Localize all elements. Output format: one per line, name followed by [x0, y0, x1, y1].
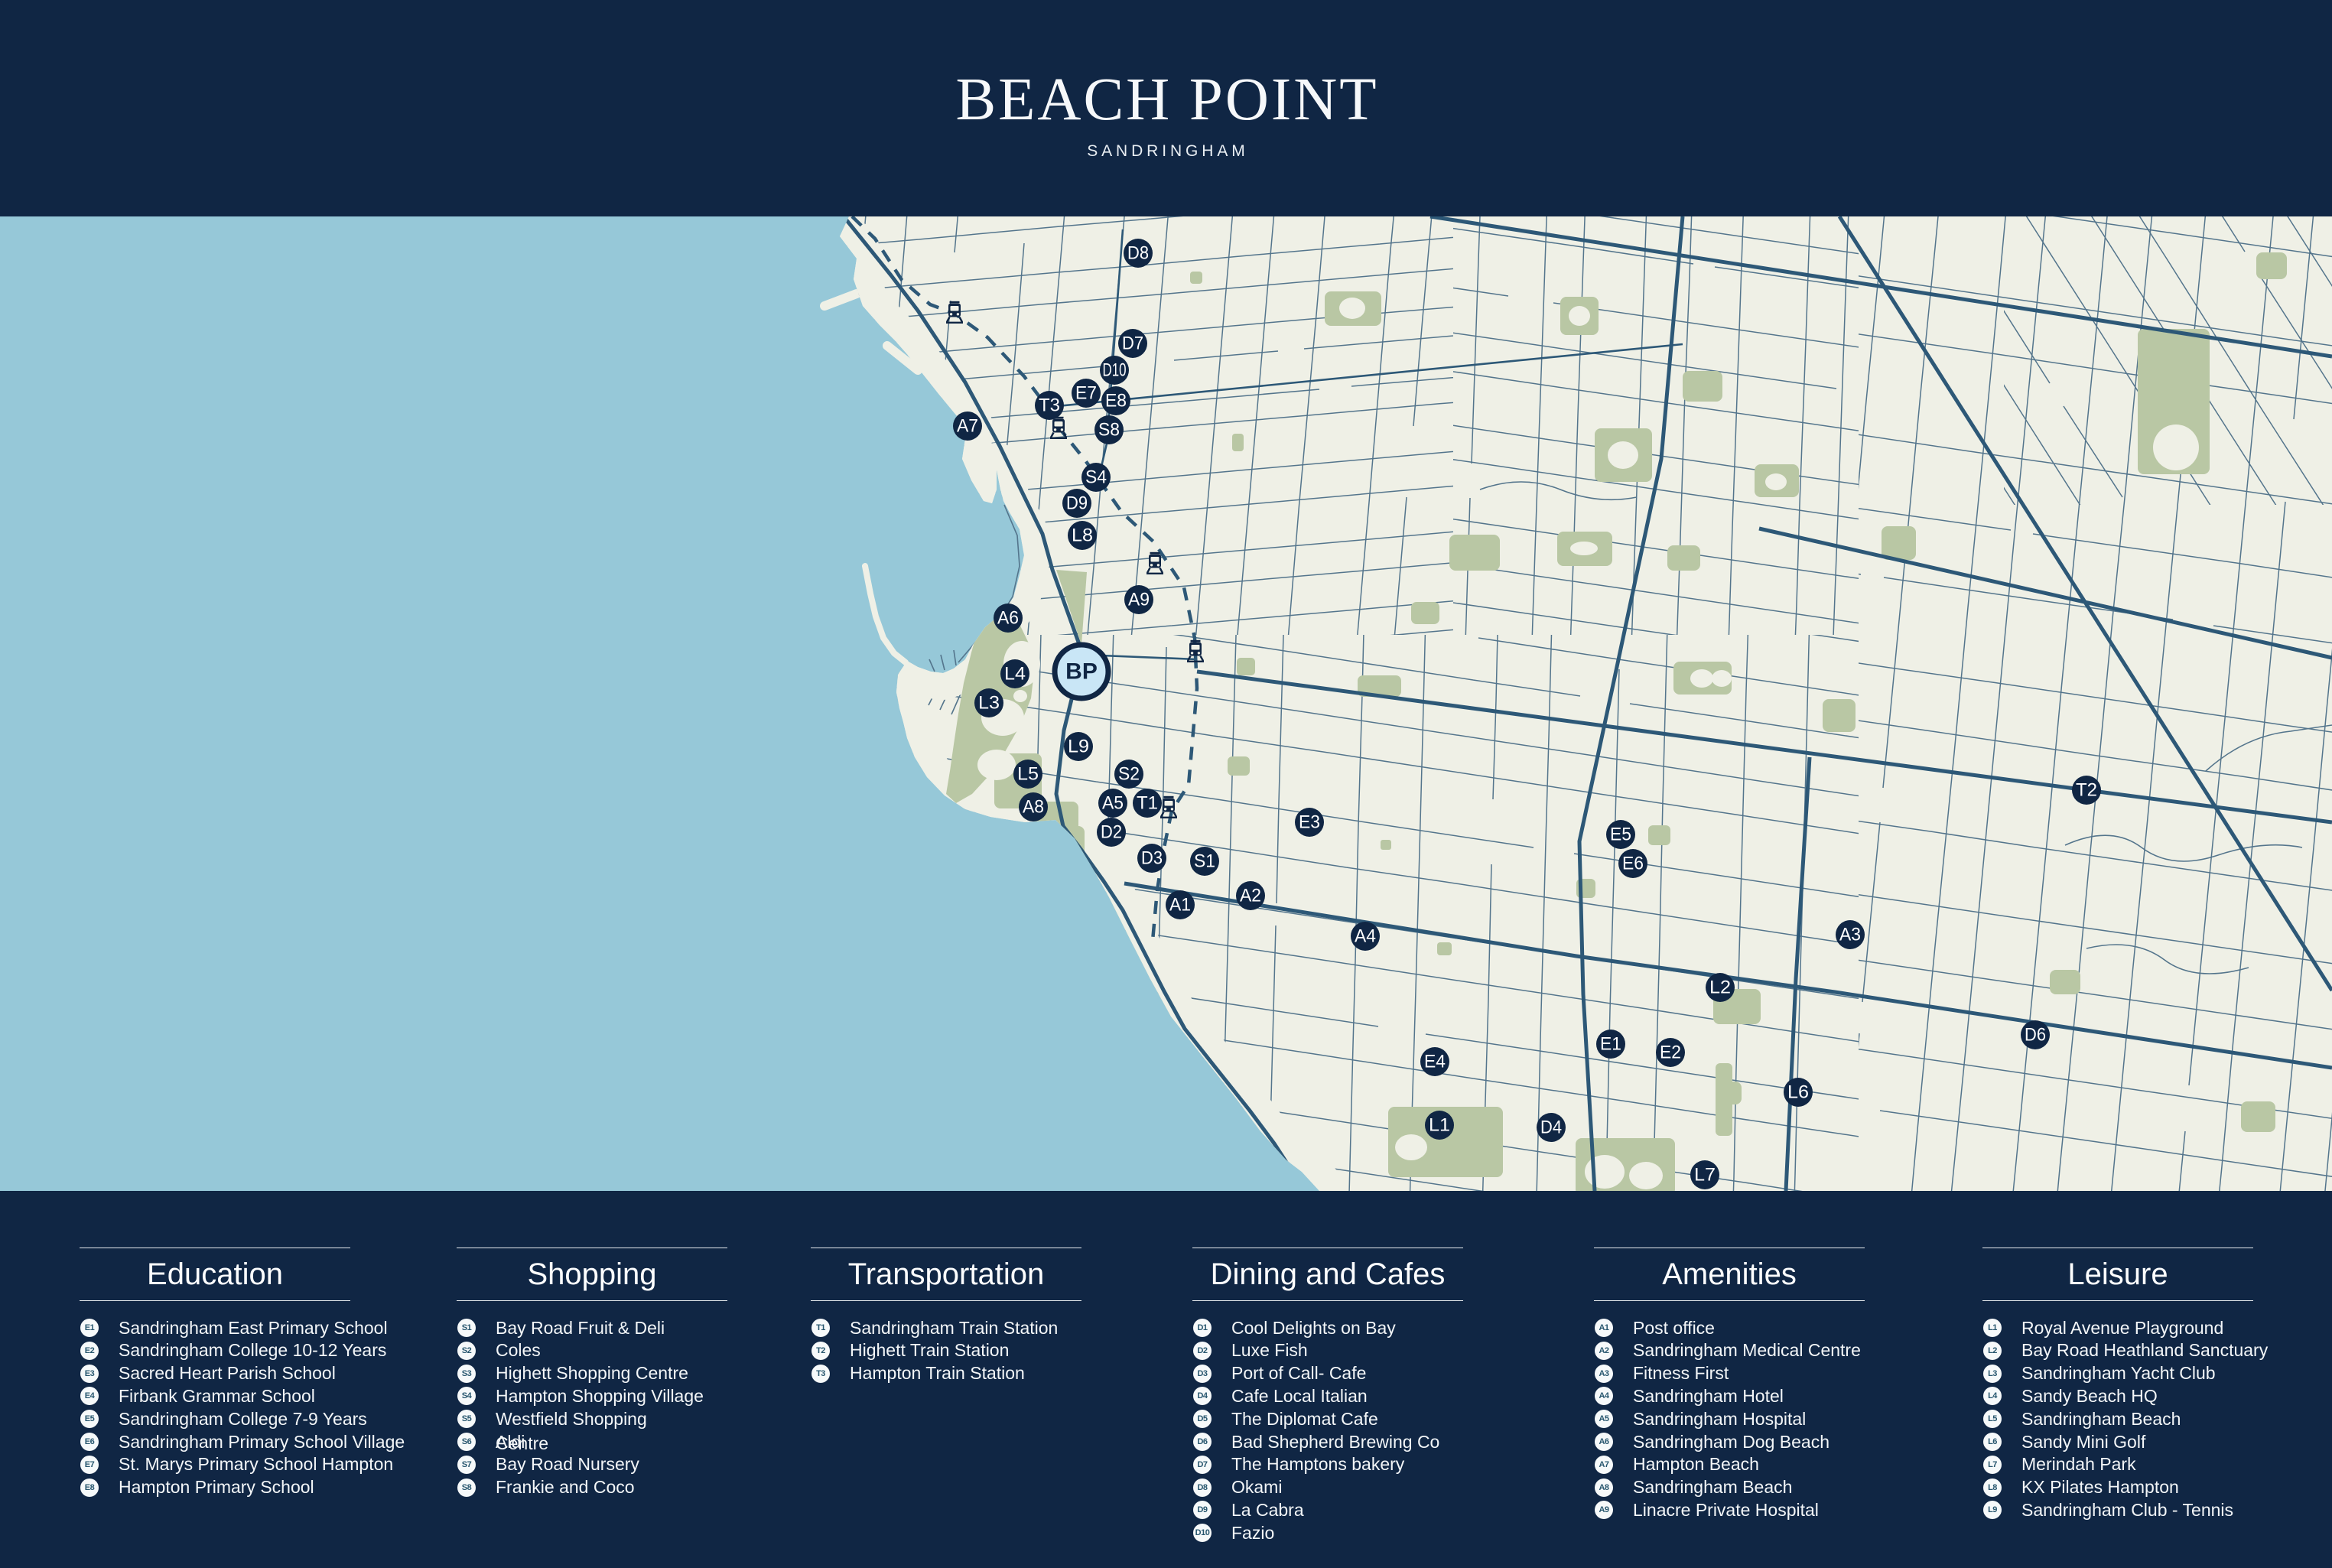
svg-text:S8: S8	[1098, 420, 1120, 441]
svg-text:D4: D4	[1540, 1117, 1562, 1138]
svg-text:T3: T3	[1039, 395, 1060, 416]
svg-text:A3: A3	[1839, 925, 1861, 945]
svg-text:A4: A4	[1355, 926, 1376, 947]
svg-text:D6: D6	[2025, 1025, 2046, 1046]
svg-text:S2: S2	[1118, 764, 1140, 785]
svg-text:A9: A9	[1128, 590, 1150, 610]
svg-text:L7: L7	[1694, 1165, 1716, 1186]
svg-text:D9: D9	[1066, 493, 1088, 514]
svg-text:L8: L8	[1072, 525, 1093, 546]
svg-text:E4: E4	[1424, 1052, 1446, 1072]
svg-text:L1: L1	[1429, 1115, 1450, 1136]
svg-text:E3: E3	[1299, 812, 1320, 833]
svg-text:E6: E6	[1622, 854, 1644, 874]
svg-text:E5: E5	[1610, 825, 1631, 845]
svg-text:E8: E8	[1105, 391, 1127, 412]
svg-text:A8: A8	[1023, 797, 1044, 818]
svg-text:E7: E7	[1075, 383, 1097, 404]
svg-text:L5: L5	[1017, 764, 1039, 785]
svg-text:D8: D8	[1127, 243, 1149, 264]
svg-text:D3: D3	[1141, 848, 1163, 869]
svg-text:BP: BP	[1065, 659, 1098, 685]
svg-text:L4: L4	[1004, 664, 1026, 685]
svg-text:L2: L2	[1709, 978, 1731, 998]
svg-text:E2: E2	[1660, 1043, 1681, 1063]
svg-text:S1: S1	[1194, 851, 1215, 872]
svg-text:A6: A6	[997, 608, 1019, 629]
svg-text:A1: A1	[1169, 895, 1191, 916]
svg-text:A2: A2	[1240, 886, 1261, 906]
svg-text:T2: T2	[2076, 780, 2097, 801]
svg-text:L9: L9	[1068, 737, 1089, 757]
svg-text:D2: D2	[1101, 822, 1122, 843]
svg-text:E1: E1	[1600, 1034, 1621, 1055]
svg-text:A7: A7	[957, 416, 978, 437]
svg-text:S4: S4	[1085, 467, 1107, 488]
svg-text:D10: D10	[1103, 360, 1127, 381]
svg-text:T1: T1	[1137, 793, 1158, 814]
svg-text:D7: D7	[1122, 333, 1143, 354]
svg-text:L6: L6	[1787, 1082, 1809, 1103]
svg-text:L3: L3	[978, 693, 1000, 714]
svg-text:A5: A5	[1102, 793, 1124, 814]
